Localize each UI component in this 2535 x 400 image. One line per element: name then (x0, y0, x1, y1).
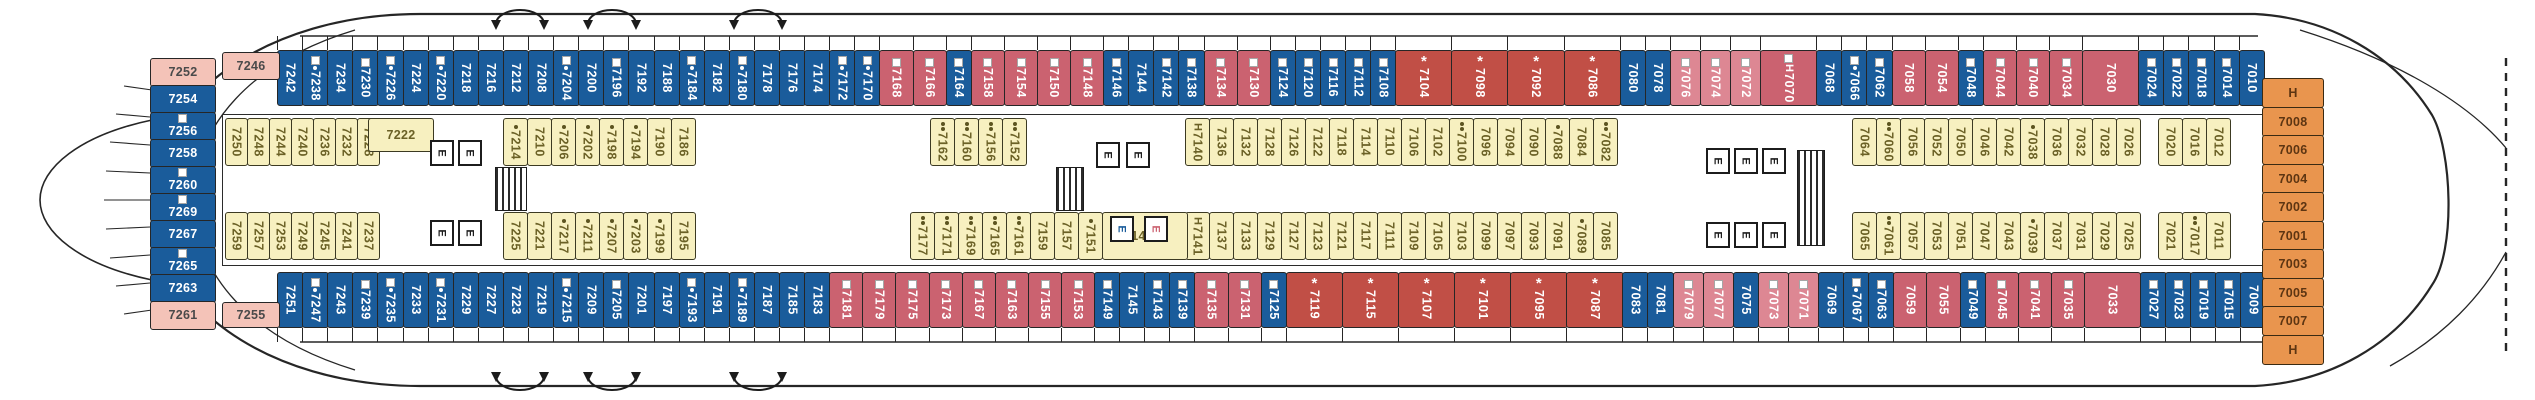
cabin-7103[interactable]: 7103 (1449, 212, 1474, 260)
cabin-7131[interactable]: 7131 (1228, 272, 1263, 328)
cabin-7269[interactable]: 7269 (150, 193, 216, 222)
cabin-7157[interactable]: 7157 (1054, 212, 1079, 260)
cabin-7169[interactable]: 7169 (958, 212, 983, 260)
cabin-7082[interactable]: 7082 (1593, 118, 1618, 166)
cabin-7177[interactable]: 7177 (910, 212, 935, 260)
cabin-7090[interactable]: 7090 (1521, 118, 1546, 166)
cabin-7245[interactable]: 7245 (313, 212, 336, 260)
cabin-7050[interactable]: 7050 (1948, 118, 1973, 166)
cabin-7171[interactable]: 7171 (934, 212, 959, 260)
cabin-7080[interactable]: 7080 (1620, 50, 1647, 106)
cabin-7026[interactable]: 7026 (2116, 118, 2141, 166)
cabin-7089[interactable]: 7089 (1569, 212, 1594, 260)
cabin-7136[interactable]: 7136 (1209, 118, 1234, 166)
cabin-7181[interactable]: 7181 (829, 272, 864, 328)
cabin-7142[interactable]: 7142 (1153, 50, 1180, 106)
cabin-7044[interactable]: 7044 (1983, 50, 2018, 106)
cabin-7119[interactable]: *7119 (1286, 272, 1344, 328)
cabin-7161[interactable]: 7161 (1006, 212, 1031, 260)
cabin-7237[interactable]: 7237 (357, 212, 380, 260)
cabin-7046[interactable]: 7046 (1972, 118, 1997, 166)
cabin-7209[interactable]: 7209 (578, 272, 605, 328)
elevator-icon: E (430, 140, 454, 166)
cabin-7198[interactable]: 7198 (599, 118, 624, 166)
cabin-7037[interactable]: 7037 (2044, 212, 2069, 260)
cabin-7199[interactable]: 7199 (647, 212, 672, 260)
cabin-7154[interactable]: 7154 (1004, 50, 1039, 106)
cabin-7104[interactable]: *7104 (1395, 50, 1453, 106)
cabin-7238[interactable]: 7238 (302, 50, 329, 106)
cabin-number: 7233 (409, 285, 423, 315)
cabin-7041[interactable]: 7041 (2018, 272, 2053, 328)
cabin-7174[interactable]: 7174 (804, 50, 831, 106)
cabin-7038[interactable]: 7038 (2020, 118, 2045, 166)
cabin-7019[interactable]: 7019 (2190, 272, 2217, 328)
cabin-7072[interactable]: 7072 (1730, 50, 1762, 106)
cabin-7134[interactable]: 7134 (1204, 50, 1239, 106)
cabin-7120[interactable]: 7120 (1295, 50, 1322, 106)
cabin-7257[interactable]: 7257 (247, 212, 270, 260)
cabin-7197[interactable]: 7197 (654, 272, 681, 328)
cabin-7056[interactable]: 7056 (1900, 118, 1925, 166)
cabin-7148[interactable]: 7148 (1070, 50, 1105, 106)
cabin-7242[interactable]: 7242 (277, 50, 304, 106)
cabin-7033[interactable]: 7033 (2084, 272, 2142, 328)
cabin-7192[interactable]: 7192 (628, 50, 655, 106)
cabin-number: 7144 (1134, 63, 1148, 93)
cabin-7202[interactable]: 7202 (575, 118, 600, 166)
cabin-7188[interactable]: 7188 (654, 50, 681, 106)
cabin-7129[interactable]: 7129 (1257, 212, 1282, 260)
balcony-divider (1153, 36, 1154, 50)
cabin-7226[interactable]: 7226 (377, 50, 404, 106)
balcony-divider (1622, 328, 1623, 342)
cabin-7022[interactable]: 7022 (2163, 50, 2190, 106)
cabin-7243[interactable]: 7243 (327, 272, 354, 328)
cabin-7049[interactable]: 7049 (1960, 272, 1987, 328)
cabin-7259[interactable]: 7259 (225, 212, 248, 260)
cabin-7246[interactable]: 7246 (222, 52, 280, 80)
cabin-7088[interactable]: 7088 (1545, 118, 1570, 166)
cabin-7121[interactable]: 7121 (1329, 212, 1354, 260)
cabin-7093[interactable]: 7093 (1521, 212, 1546, 260)
cabin-7201[interactable]: 7201 (628, 272, 655, 328)
cabin-7111[interactable]: 7111 (1377, 212, 1402, 260)
cabin-7106[interactable]: 7106 (1401, 118, 1426, 166)
cabin-7164[interactable]: 7164 (946, 50, 973, 106)
cabin-7258[interactable]: 7258 (150, 139, 216, 168)
cabin-7083[interactable]: 7083 (1622, 272, 1649, 328)
cabin-7052[interactable]: 7052 (1924, 118, 1949, 166)
cabin-7267[interactable]: 7267 (150, 220, 216, 249)
cabin-7137[interactable]: 7137 (1209, 212, 1234, 260)
cabin-7210[interactable]: 7210 (527, 118, 552, 166)
cabin-7066[interactable]: 7066 (1841, 50, 1868, 106)
cabin-7073[interactable]: 7073 (1758, 272, 1790, 328)
cabin-number: H (2288, 343, 2297, 357)
cabin-7039[interactable]: 7039 (2020, 212, 2045, 260)
cabin-7260[interactable]: 7260 (150, 166, 216, 195)
category-square-icon (954, 58, 963, 67)
cabin-7087[interactable]: *7087 (1566, 272, 1624, 328)
cabin-7057[interactable]: 7057 (1900, 212, 1925, 260)
cabin-7060[interactable]: 7060 (1876, 118, 1901, 166)
cabin-7168[interactable]: 7168 (879, 50, 914, 106)
cabin-7024[interactable]: 7024 (2138, 50, 2165, 106)
cabin-7152[interactable]: 7152 (1002, 118, 1027, 166)
cabin-7096[interactable]: 7096 (1473, 118, 1498, 166)
cabin-7144[interactable]: 7144 (1128, 50, 1155, 106)
cabin-7176[interactable]: 7176 (779, 50, 806, 106)
cabin-7166[interactable]: 7166 (913, 50, 948, 106)
cabin-7167[interactable]: 7167 (962, 272, 997, 328)
cabin-7048[interactable]: 7048 (1958, 50, 1985, 106)
cabin-number: 7203 (629, 224, 643, 254)
cabin-number: 7239 (359, 290, 373, 320)
cabin-7191[interactable]: 7191 (704, 272, 731, 328)
cabin-7122[interactable]: 7122 (1305, 118, 1330, 166)
cabin-7159[interactable]: 7159 (1030, 212, 1055, 260)
cabin-7204[interactable]: 7204 (553, 50, 580, 106)
cabin-7156[interactable]: 7156 (978, 118, 1003, 166)
cabin-7025[interactable]: 7025 (2116, 212, 2141, 260)
cabin-7017[interactable]: 7017 (2182, 212, 2207, 260)
cabin-7180[interactable]: 7180 (729, 50, 756, 106)
cabin-number: 7148 (1080, 68, 1094, 98)
cabin-7086[interactable]: *7086 (1564, 50, 1622, 106)
cabin-7240[interactable]: 7240 (291, 118, 314, 166)
cabin-7029[interactable]: 7029 (2092, 212, 2117, 260)
cabin-number: 7153 (1071, 290, 1085, 320)
cabin-7133[interactable]: 7133 (1233, 212, 1258, 260)
cabin-7068[interactable]: 7068 (1816, 50, 1843, 106)
cabin-number: 7086 (1585, 68, 1599, 98)
cabin-7256[interactable]: 7256 (150, 112, 216, 141)
cabin-7079[interactable]: 7079 (1673, 272, 1705, 328)
cabin-7051[interactable]: 7051 (1948, 212, 1973, 260)
cabin-7162[interactable]: 7162 (930, 118, 955, 166)
cabin-7035[interactable]: 7035 (2051, 272, 2086, 328)
cabin-7215[interactable]: 7215 (553, 272, 580, 328)
cabin-7043[interactable]: 7043 (1996, 212, 2021, 260)
cabin-7235[interactable]: 7235 (377, 272, 404, 328)
cabin-7203[interactable]: 7203 (623, 212, 648, 260)
cabin-7118[interactable]: 7118 (1329, 118, 1354, 166)
cabin-number: 7065 (1858, 221, 1872, 251)
cabin-7163[interactable]: 7163 (995, 272, 1030, 328)
category-dot-icon (564, 66, 568, 70)
cabin-7219[interactable]: 7219 (528, 272, 555, 328)
cabin-7016[interactable]: 7016 (2182, 118, 2207, 166)
cabin-7170[interactable]: 7170 (854, 50, 881, 106)
cabin-7065[interactable]: 7065 (1852, 212, 1877, 260)
cabin-7077[interactable]: 7077 (1703, 272, 1735, 328)
cabin-number: 7004 (2278, 172, 2307, 186)
cabin-7028[interactable]: 7028 (2092, 118, 2117, 166)
cabin-7175[interactable]: 7175 (895, 272, 930, 328)
cabin-7075[interactable]: 7075 (1733, 272, 1760, 328)
balcony-divider (679, 36, 680, 50)
cabin-7012[interactable]: 7012 (2206, 118, 2231, 166)
cabin-7125[interactable]: 7125 (1261, 272, 1288, 328)
cabin-number: 7222 (386, 128, 415, 142)
cabin-7227[interactable]: 7227 (478, 272, 505, 328)
cabin-7098[interactable]: *7098 (1451, 50, 1509, 106)
cabin-7173[interactable]: 7173 (929, 272, 964, 328)
cabin-number: 7249 (296, 221, 310, 251)
cabin-7255[interactable]: 7255 (222, 302, 280, 328)
cabin-7130[interactable]: 7130 (1237, 50, 1272, 106)
cabin-7195[interactable]: 7195 (671, 212, 696, 260)
cabin-7078[interactable]: 7078 (1645, 50, 1672, 106)
balcony-divider (453, 36, 454, 50)
cabin-number: 7263 (168, 281, 197, 295)
cabin-7138[interactable]: 7138 (1178, 50, 1205, 106)
cabin-7040[interactable]: 7040 (2016, 50, 2051, 106)
cabin-7011[interactable]: 7011 (2206, 212, 2231, 260)
cabin-7179[interactable]: 7179 (862, 272, 897, 328)
cabin-7251[interactable]: 7251 (277, 272, 304, 328)
cabin-number: 7001 (2278, 229, 2307, 243)
cabin-7172[interactable]: 7172 (829, 50, 856, 106)
cabin-7178[interactable]: 7178 (754, 50, 781, 106)
cabin-7100[interactable]: 7100 (1449, 118, 1474, 166)
cabin-number: 7187 (760, 285, 774, 315)
cabin-7097[interactable]: 7097 (1497, 212, 1522, 260)
cabin-7140[interactable]: H7140 (1185, 118, 1210, 166)
stairs-icon (495, 167, 527, 211)
cabin-7208[interactable]: 7208 (528, 50, 555, 106)
cabin-7193[interactable]: 7193 (679, 272, 706, 328)
cabin-7023[interactable]: 7023 (2165, 272, 2192, 328)
suite-asterisk-icon: * (1592, 280, 1598, 289)
cabin-7248[interactable]: 7248 (247, 118, 270, 166)
cabin-7114[interactable]: 7114 (1353, 118, 1378, 166)
cabin-7232[interactable]: 7232 (335, 118, 358, 166)
cabin-7054[interactable]: 7054 (1925, 50, 1960, 106)
cabin-7053[interactable]: 7053 (1924, 212, 1949, 260)
cabin-7217[interactable]: 7217 (551, 212, 576, 260)
cabin-7045[interactable]: 7045 (1985, 272, 2020, 328)
balcony-divider (1395, 36, 1396, 50)
cabin-7189[interactable]: 7189 (729, 272, 756, 328)
cabin-7115[interactable]: *7115 (1342, 272, 1400, 328)
cabin-7020[interactable]: 7020 (2158, 118, 2183, 166)
cabin-7151[interactable]: 7151 (1078, 212, 1103, 260)
cabin-7085[interactable]: 7085 (1593, 212, 1618, 260)
cabin-7236[interactable]: 7236 (313, 118, 336, 166)
category-dot-icon (610, 219, 614, 223)
cabin-7102[interactable]: 7102 (1425, 118, 1450, 166)
cabin-7015[interactable]: 7015 (2215, 272, 2242, 328)
cabin-7254[interactable]: 7254 (150, 85, 216, 114)
cabin-7253[interactable]: 7253 (269, 212, 292, 260)
cabin-7074[interactable]: 7074 (1700, 50, 1732, 106)
balcony-divider (829, 36, 830, 50)
cabin-7123[interactable]: 7123 (1305, 212, 1330, 260)
cabin-7007[interactable]: 7007 (2262, 306, 2324, 336)
cabin-7034[interactable]: 7034 (2049, 50, 2084, 106)
cabin-7059[interactable]: 7059 (1893, 272, 1928, 328)
cabin-7155[interactable]: 7155 (1028, 272, 1063, 328)
cabin-7002[interactable]: 7002 (2262, 192, 2324, 222)
cabin-7107[interactable]: *7107 (1398, 272, 1456, 328)
cabin-7081[interactable]: 7081 (1647, 272, 1674, 328)
cabin-7105[interactable]: 7105 (1425, 212, 1450, 260)
cabin-7030[interactable]: 7030 (2082, 50, 2140, 106)
cabin-number: 7072 (1739, 68, 1753, 98)
cabin-7143[interactable]: 7143 (1144, 272, 1171, 328)
category-square-icon (1007, 280, 1016, 289)
category-square-icon (436, 278, 445, 287)
cabin-7036[interactable]: 7036 (2044, 118, 2069, 166)
cabin-7182[interactable]: 7182 (704, 50, 731, 106)
cabin-7196[interactable]: 7196 (603, 50, 630, 106)
cabin-7165[interactable]: 7165 (982, 212, 1007, 260)
cabin-7001[interactable]: 7001 (2262, 221, 2324, 251)
cabin-7004[interactable]: 7004 (2262, 164, 2324, 194)
cabin-7109[interactable]: 7109 (1401, 212, 1426, 260)
cabin-7249[interactable]: 7249 (291, 212, 314, 260)
cabin-7127[interactable]: 7127 (1281, 212, 1306, 260)
cabin-7247[interactable]: 7247 (302, 272, 329, 328)
cabin-7187[interactable]: 7187 (754, 272, 781, 328)
cabin-7071[interactable]: 7071 (1788, 272, 1820, 328)
cabin-7055[interactable]: 7055 (1926, 272, 1961, 328)
cabin-7250[interactable]: 7250 (225, 118, 248, 166)
cabin-7214[interactable]: 7214 (503, 118, 528, 166)
cabin-7062[interactable]: 7062 (1866, 50, 1893, 106)
cabin-7003[interactable]: 7003 (2262, 249, 2324, 279)
cabin-7150[interactable]: 7150 (1037, 50, 1072, 106)
cabin-7094[interactable]: 7094 (1497, 118, 1522, 166)
balcony-divider (478, 36, 479, 50)
cabin-7006[interactable]: 7006 (2262, 135, 2324, 165)
cabin-7230[interactable]: 7230 (352, 50, 379, 106)
cabin-number: 7211 (581, 224, 595, 253)
cabin-7124[interactable]: 7124 (1270, 50, 1297, 106)
cabin-7112[interactable]: 7112 (1345, 50, 1372, 106)
cabin-7263[interactable]: 7263 (150, 274, 216, 303)
cabin-7005[interactable]: 7005 (2262, 278, 2324, 308)
cabin-7200[interactable]: 7200 (578, 50, 605, 106)
cabin-7061[interactable]: 7061 (1876, 212, 1901, 260)
cabin-7229[interactable]: 7229 (453, 272, 480, 328)
cabin-7067[interactable]: 7067 (1843, 272, 1870, 328)
cabin-number: 7202 (581, 130, 595, 160)
cabin-number: 7246 (236, 59, 265, 73)
cabin-7014[interactable]: 7014 (2214, 50, 2241, 106)
cabin-7224[interactable]: 7224 (403, 50, 430, 106)
cabin-7070[interactable]: H7070 (1760, 50, 1818, 106)
cabin-7032[interactable]: 7032 (2068, 118, 2093, 166)
cabin-7158[interactable]: 7158 (971, 50, 1006, 106)
cabin-number: 7242 (283, 63, 297, 93)
cabin-7145[interactable]: 7145 (1119, 272, 1146, 328)
cabin-7135[interactable]: 7135 (1194, 272, 1229, 328)
cabin-7212[interactable]: 7212 (503, 50, 530, 106)
cabin-7216[interactable]: 7216 (478, 50, 505, 106)
cabin-number: 7101 (1476, 290, 1490, 320)
cabin-7153[interactable]: 7153 (1061, 272, 1096, 328)
cabin-7218[interactable]: 7218 (453, 50, 480, 106)
cabin-7101[interactable]: *7101 (1454, 272, 1512, 328)
cabin-7239[interactable]: 7239 (352, 272, 379, 328)
cabin-7183[interactable]: 7183 (804, 272, 831, 328)
cabin-7234[interactable]: 7234 (327, 50, 354, 106)
cabin-7205[interactable]: 7205 (603, 272, 630, 328)
cabin-7194[interactable]: 7194 (623, 118, 648, 166)
cabin-7231[interactable]: 7231 (428, 272, 455, 328)
cabin-7128[interactable]: 7128 (1257, 118, 1282, 166)
cabin-7225[interactable]: 7225 (503, 212, 528, 260)
cabin-7099[interactable]: 7099 (1473, 212, 1498, 260)
cabin-7042[interactable]: 7042 (1996, 118, 2021, 166)
cabin-7095[interactable]: *7095 (1510, 272, 1568, 328)
cabin-7221[interactable]: 7221 (527, 212, 552, 260)
cabin-7261[interactable]: 7261 (150, 301, 216, 330)
cabin-7008[interactable]: 7008 (2262, 107, 2324, 137)
cabin-7018[interactable]: 7018 (2188, 50, 2215, 106)
cabin-7184[interactable]: 7184 (679, 50, 706, 106)
cabin-7047[interactable]: 7047 (1972, 212, 1997, 260)
cabin-7244[interactable]: 7244 (269, 118, 292, 166)
cabin-7116[interactable]: 7116 (1320, 50, 1347, 106)
cabin-7207[interactable]: 7207 (599, 212, 624, 260)
cabin-7185[interactable]: 7185 (779, 272, 806, 328)
cabin-7211[interactable]: 7211 (575, 212, 600, 260)
cabin-7064[interactable]: 7064 (1852, 118, 1877, 166)
cabin-7241[interactable]: 7241 (335, 212, 358, 260)
cabin-H[interactable]: H (2262, 78, 2324, 108)
cabin-7220[interactable]: 7220 (428, 50, 455, 106)
cabin-7149[interactable]: 7149 (1094, 272, 1121, 328)
cabin-7146[interactable]: 7146 (1103, 50, 1130, 106)
cabin-7233[interactable]: 7233 (403, 272, 430, 328)
cabin-7190[interactable]: 7190 (647, 118, 672, 166)
cabin-7252[interactable]: 7252 (150, 58, 216, 87)
cabin-7117[interactable]: 7117 (1353, 212, 1378, 260)
cabin-7069[interactable]: 7069 (1818, 272, 1845, 328)
cabin-H[interactable]: H (2262, 335, 2324, 365)
category-square-icon (1852, 278, 1861, 287)
cabin-7186[interactable]: 7186 (671, 118, 696, 166)
cabin-7031[interactable]: 7031 (2068, 212, 2093, 260)
cabin-7265[interactable]: 7265 (150, 247, 216, 276)
cabin-7160[interactable]: 7160 (954, 118, 979, 166)
cabin-7091[interactable]: 7091 (1545, 212, 1570, 260)
cabin-7027[interactable]: 7027 (2140, 272, 2167, 328)
cabin-7206[interactable]: 7206 (551, 118, 576, 166)
cabin-number: 7080 (1626, 63, 1640, 93)
cabin-7110[interactable]: 7110 (1377, 118, 1402, 166)
cabin-7063[interactable]: 7063 (1868, 272, 1895, 328)
cabin-7108[interactable]: 7108 (1370, 50, 1397, 106)
cabin-7222[interactable]: 7222 (368, 118, 434, 152)
cabin-number: 7066 (1848, 71, 1862, 101)
cabin-7058[interactable]: 7058 (1892, 50, 1927, 106)
cabin-7076[interactable]: 7076 (1670, 50, 1702, 106)
cabin-7092[interactable]: *7092 (1507, 50, 1565, 106)
cabin-7021[interactable]: 7021 (2158, 212, 2183, 260)
cabin-7126[interactable]: 7126 (1281, 118, 1306, 166)
cabin-7139[interactable]: 7139 (1169, 272, 1196, 328)
cabin-7223[interactable]: 7223 (503, 272, 530, 328)
cabin-7084[interactable]: 7084 (1569, 118, 1594, 166)
cabin-7141[interactable]: H7141 (1185, 212, 1210, 260)
cabin-7132[interactable]: 7132 (1233, 118, 1258, 166)
cabin-number: 7102 (1431, 127, 1445, 157)
